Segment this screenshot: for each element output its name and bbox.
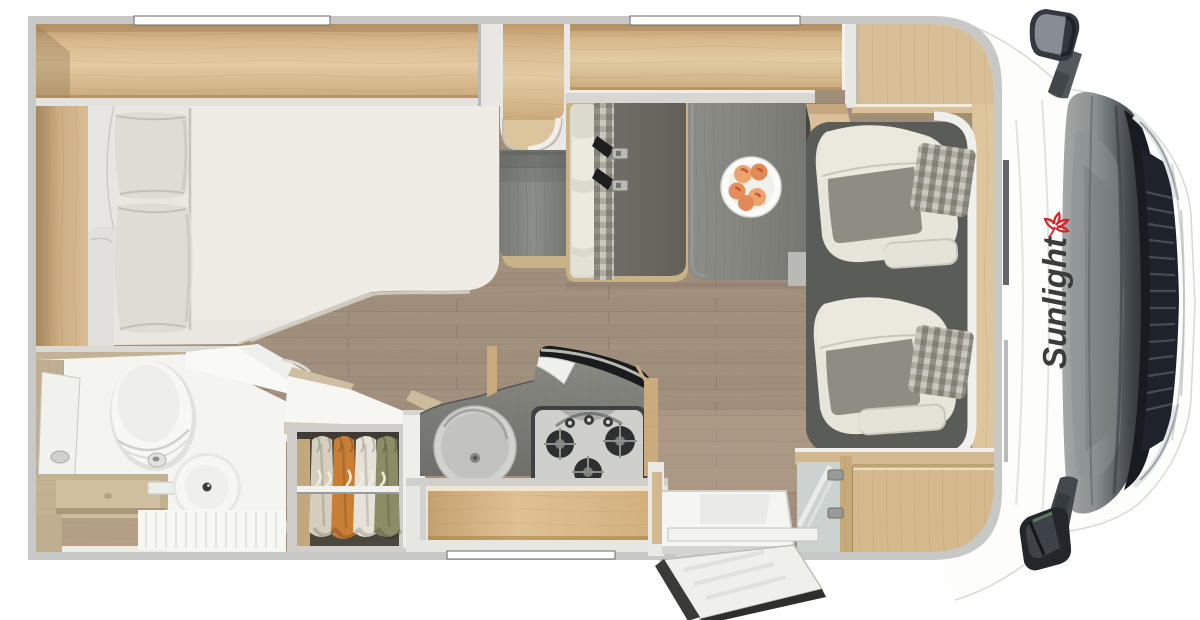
svg-text:Sunlight: Sunlight xyxy=(1036,235,1073,369)
